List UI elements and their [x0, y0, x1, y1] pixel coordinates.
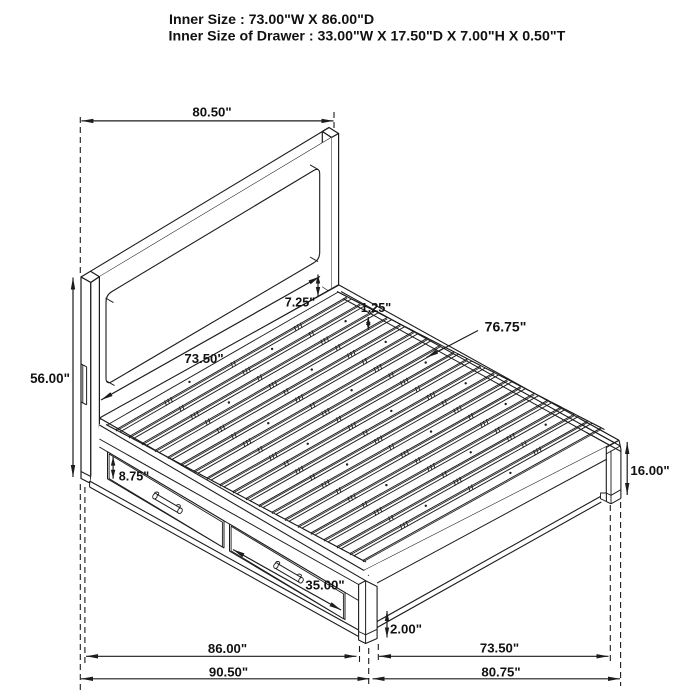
svg-text:80.75": 80.75"	[481, 665, 520, 680]
svg-text:76.75": 76.75"	[485, 319, 527, 335]
svg-text:Inner Size of Drawer : 33.00"W: Inner Size of Drawer : 33.00"W X 17.50"D…	[169, 29, 566, 45]
svg-text:8.75": 8.75"	[119, 470, 150, 484]
svg-text:73.50": 73.50"	[184, 351, 223, 366]
svg-text:Inner Size : 73.00"W X 86.00"D: Inner Size : 73.00"W X 86.00"D	[169, 12, 374, 28]
svg-text:1.25": 1.25"	[361, 301, 392, 315]
svg-text:16.00": 16.00"	[630, 463, 669, 478]
svg-text:35.00": 35.00"	[305, 578, 344, 593]
svg-text:86.00": 86.00"	[208, 641, 247, 656]
svg-text:56.00": 56.00"	[30, 371, 70, 386]
svg-text:7.25": 7.25"	[285, 296, 316, 310]
svg-text:73.50": 73.50"	[480, 641, 519, 656]
svg-text:80.50": 80.50"	[192, 105, 231, 120]
svg-text:90.50": 90.50"	[209, 665, 248, 680]
svg-text:2.00": 2.00"	[390, 622, 422, 637]
